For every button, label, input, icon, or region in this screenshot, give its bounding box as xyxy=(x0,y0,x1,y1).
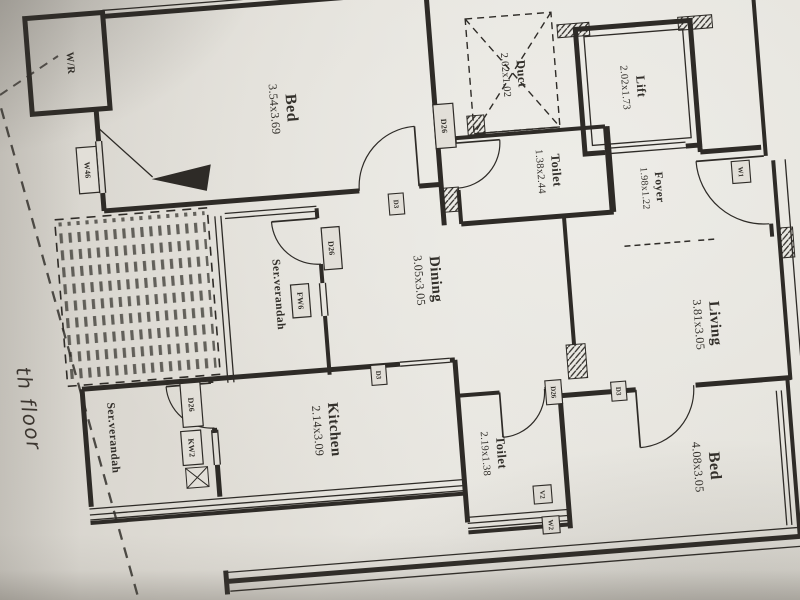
svg-text:2.02x1.73: 2.02x1.73 xyxy=(617,65,631,110)
svg-text:1.38x2.44: 1.38x2.44 xyxy=(533,149,548,195)
room-label-dining: Dining 3.05x3.05 xyxy=(411,253,446,306)
svg-text:Bed: Bed xyxy=(282,93,301,122)
svg-text:Ser.verandah: Ser.verandah xyxy=(104,402,122,474)
terrace-grill-hatch xyxy=(58,211,217,382)
svg-text:Bed: Bed xyxy=(705,451,724,480)
door-tag-d26-ser-verandah-2: D26 xyxy=(180,382,203,427)
floor-plan-drawing: th floor xyxy=(0,0,800,600)
svg-text:W1: W1 xyxy=(736,166,745,178)
svg-text:3.54x3.69: 3.54x3.69 xyxy=(266,83,284,135)
svg-text:D26: D26 xyxy=(326,241,336,256)
svg-text:Ser.verandah: Ser.verandah xyxy=(269,259,287,331)
door-tag-d26-toilet-2: D26 xyxy=(545,380,563,405)
ventilator-tag-v2: V2 xyxy=(533,485,552,504)
svg-text:Toilet: Toilet xyxy=(493,435,510,469)
hatched-wall-piers xyxy=(430,8,800,388)
room-label-foyer: Foyer 1.98x1.22 xyxy=(637,166,666,211)
door-leaves xyxy=(147,99,786,484)
door-tag-d26-toilet-1: D26 xyxy=(433,103,456,148)
handwritten-floor-note: th floor xyxy=(11,365,47,452)
door-tag-d3-bed-1: D3 xyxy=(388,193,405,215)
svg-text:D3: D3 xyxy=(392,199,401,209)
floor-plan-photo: th floor xyxy=(0,0,800,600)
room-label-living: Living 3.81x3.05 xyxy=(690,297,725,350)
room-label-toilet-1: Toilet 1.38x2.44 xyxy=(533,148,565,195)
plan-rotated-group: W/R Bed 3.54x3.69 Duct 2.02x1.02 Lift 2.… xyxy=(25,0,800,600)
room-label-ser-verandah-2: Ser.verandah xyxy=(104,402,122,474)
window-tag-w1: W1 xyxy=(731,160,751,183)
window-tag-kw2: KW2 xyxy=(181,430,204,465)
svg-text:D26: D26 xyxy=(549,386,558,399)
svg-text:D3: D3 xyxy=(614,387,623,397)
room-label-wr: W/R xyxy=(64,52,77,75)
ventilator-x-box xyxy=(186,467,210,489)
svg-text:1.98x1.22: 1.98x1.22 xyxy=(637,167,651,210)
direction-arrow xyxy=(151,164,213,195)
door-tag-d26-ser-verandah-1: D26 xyxy=(321,227,342,270)
svg-text:2.02x1.02: 2.02x1.02 xyxy=(498,52,512,97)
svg-text:Toilet: Toilet xyxy=(548,153,565,187)
room-label-bed-2: Bed 4.08x3.05 xyxy=(689,440,725,493)
room-label-kitchen: Kitchen 2.14x3.09 xyxy=(309,402,344,459)
door-swing-arcs xyxy=(147,99,786,484)
window-tag-w2: W2 xyxy=(542,516,560,534)
door-tag-d3-bed-2: D3 xyxy=(611,381,627,401)
svg-text:2.19x1.38: 2.19x1.38 xyxy=(478,431,492,476)
room-label-toilet-2: Toilet 2.19x1.38 xyxy=(478,430,510,477)
svg-text:W46: W46 xyxy=(82,161,92,178)
room-label-bed-1: Bed 3.54x3.69 xyxy=(266,82,302,135)
svg-text:KW2: KW2 xyxy=(186,438,196,457)
svg-text:Duct: Duct xyxy=(514,59,530,88)
svg-text:V2: V2 xyxy=(538,490,547,500)
svg-text:W/R: W/R xyxy=(64,52,77,75)
door-tag-d3-kitchen: D3 xyxy=(371,364,388,385)
svg-text:3.81x3.05: 3.81x3.05 xyxy=(690,299,708,351)
room-label-lift: Lift 2.02x1.73 xyxy=(617,64,649,111)
window-tag-w46: W46 xyxy=(76,146,100,193)
svg-text:Foyer: Foyer xyxy=(652,171,666,203)
svg-text:D26: D26 xyxy=(186,397,196,412)
svg-text:3.05x3.05: 3.05x3.05 xyxy=(411,255,429,307)
window-tag-fw6: FW6 xyxy=(290,284,311,318)
svg-text:W2: W2 xyxy=(546,519,555,531)
svg-text:2.14x3.09: 2.14x3.09 xyxy=(309,405,327,457)
room-label-ser-verandah-1: Ser.verandah xyxy=(269,259,287,331)
svg-text:4.08x3.05: 4.08x3.05 xyxy=(689,441,707,493)
svg-text:FW6: FW6 xyxy=(295,292,305,310)
svg-text:Lift: Lift xyxy=(633,75,649,99)
foyer-threshold-dashes xyxy=(624,239,718,246)
svg-text:D3: D3 xyxy=(374,370,383,380)
svg-text:D26: D26 xyxy=(439,118,449,133)
